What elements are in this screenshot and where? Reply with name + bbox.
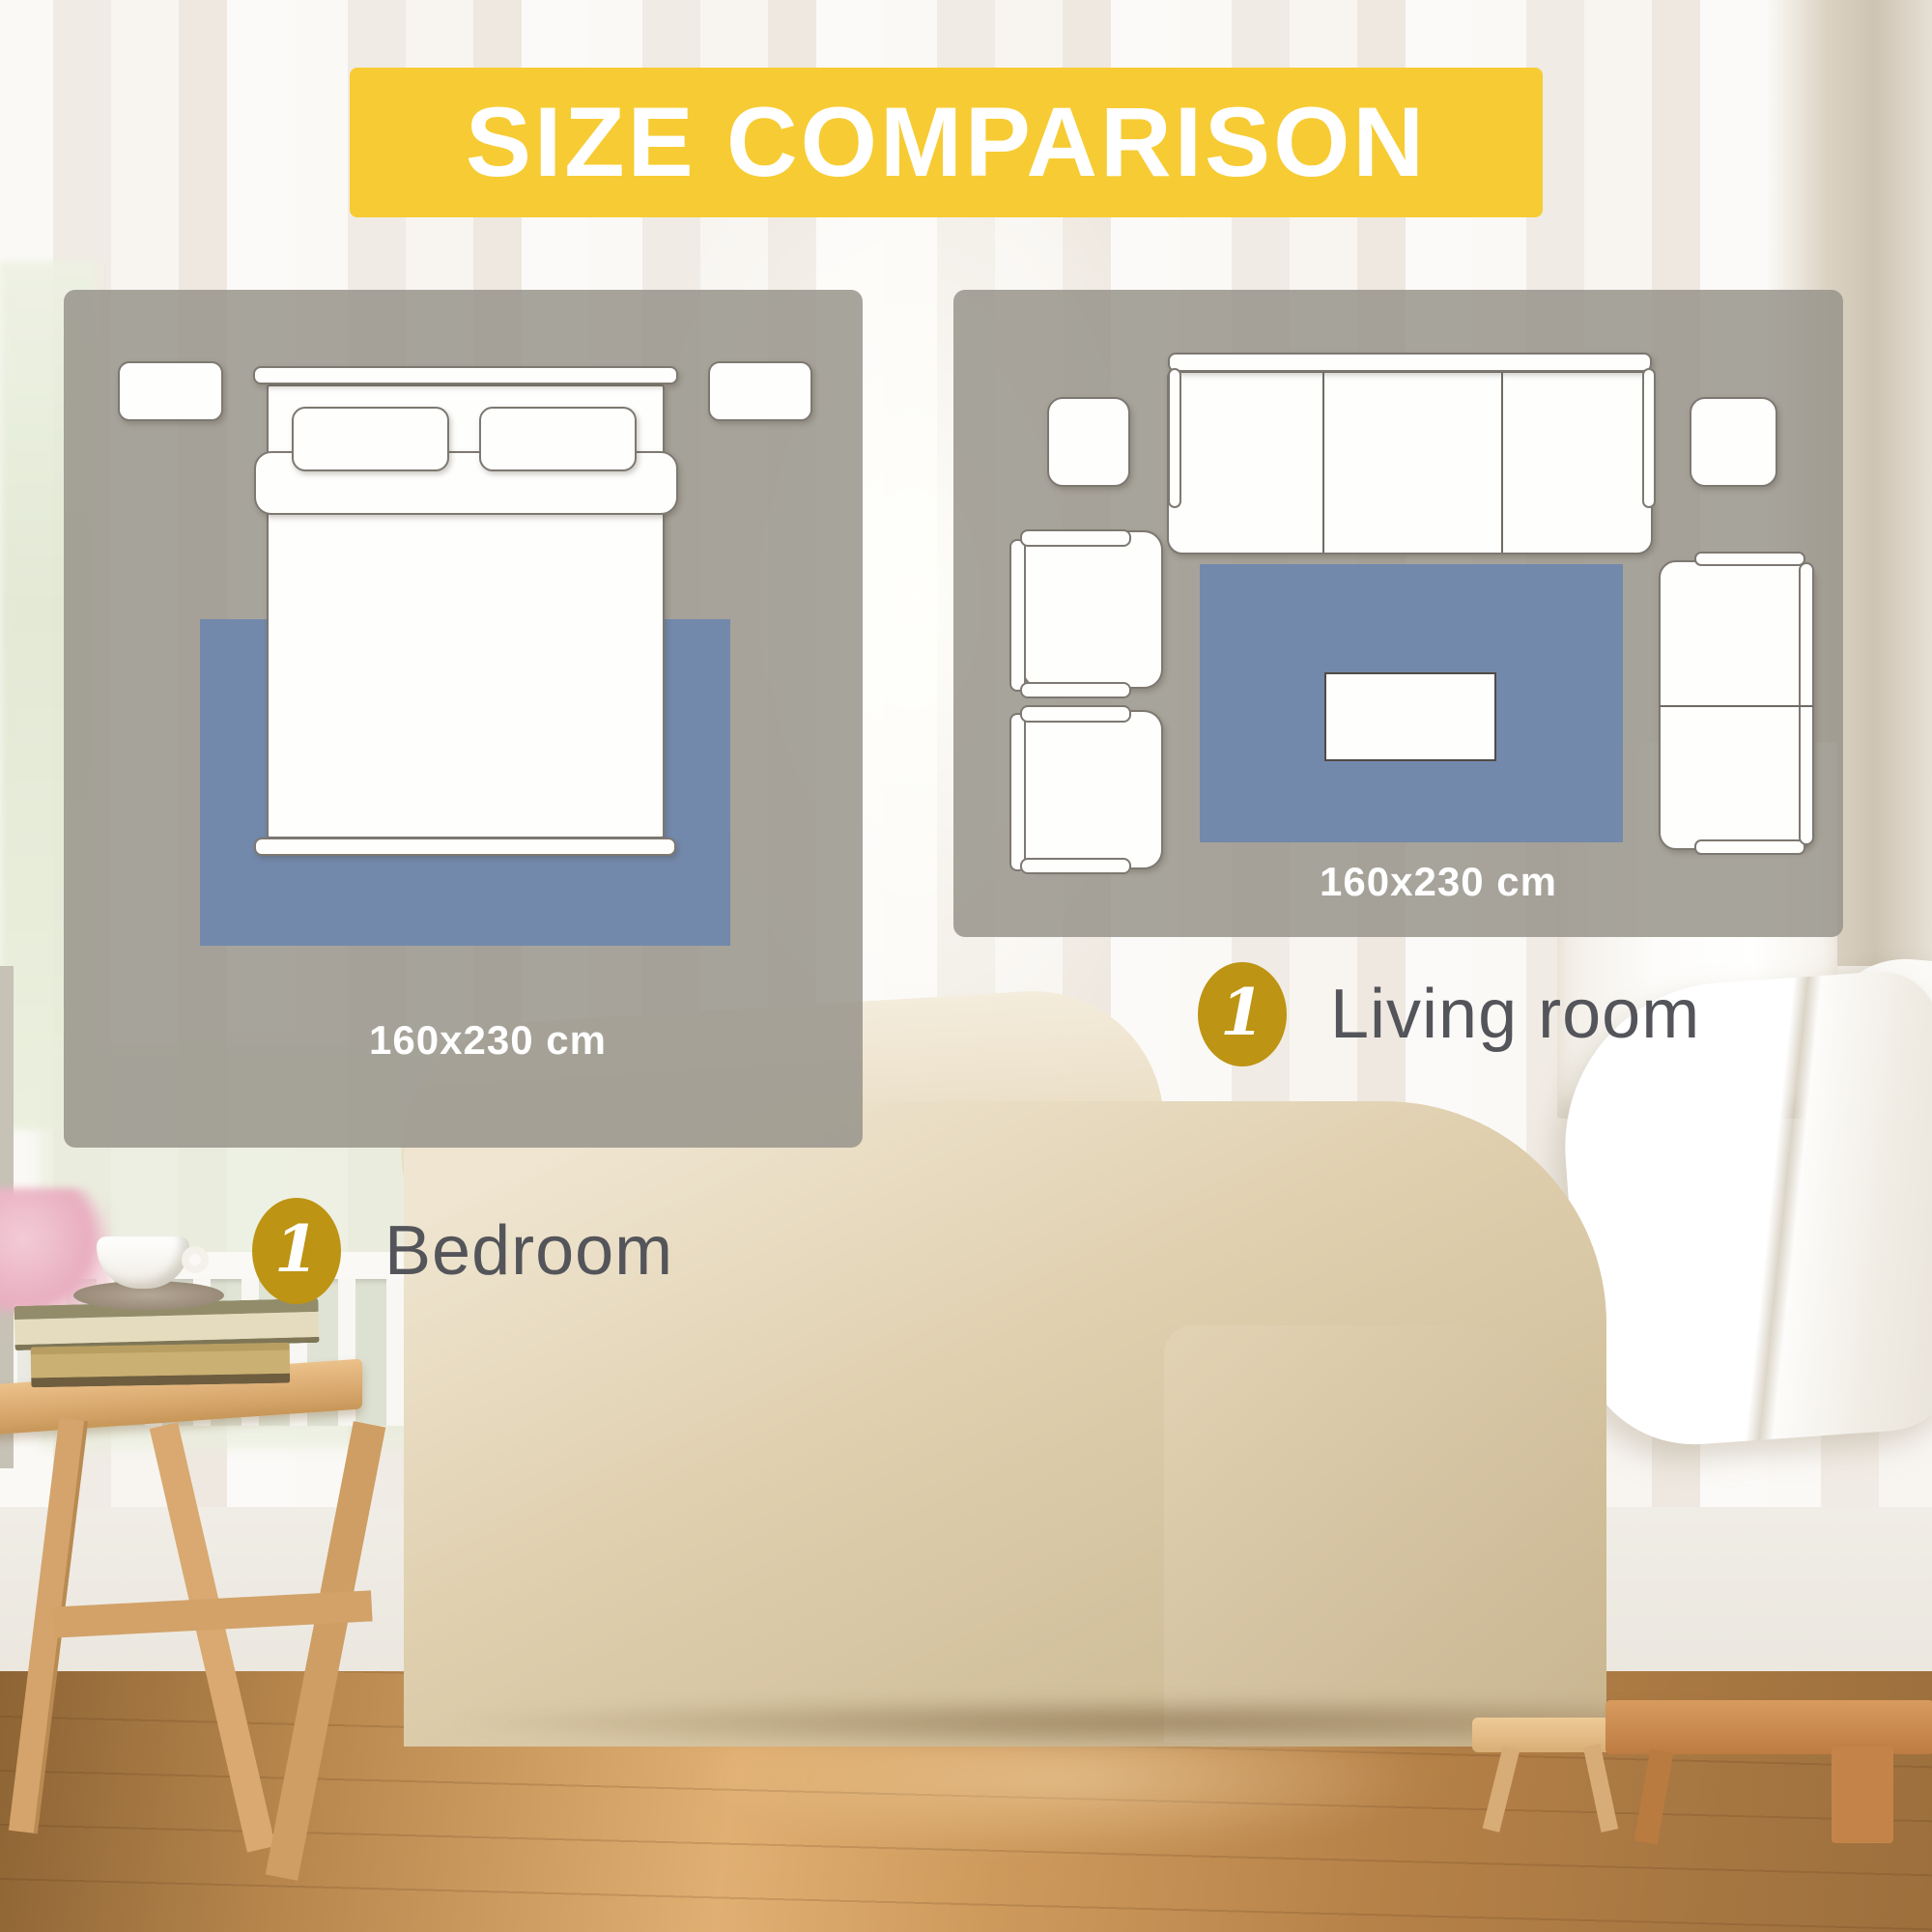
armchair-2-back bbox=[1009, 713, 1026, 871]
infographic-root: SIZE COMPARISON 160x230 cm bbox=[0, 0, 1932, 1932]
bed-plan-pillow-left bbox=[292, 407, 449, 471]
living-room-panel: 160x230 cm bbox=[953, 290, 1843, 937]
nightstand-left bbox=[118, 361, 223, 421]
bed-plan-footboard bbox=[254, 838, 676, 856]
sofa-cushion-divider bbox=[1322, 373, 1324, 553]
caption-label: Bedroom bbox=[384, 1211, 673, 1291]
stool-leg bbox=[1832, 1747, 1893, 1843]
armchair-1-body bbox=[1022, 530, 1163, 689]
armchair-1-back bbox=[1009, 539, 1026, 692]
bed-plan-headboard bbox=[253, 366, 678, 384]
bed-plan-pillow-right bbox=[479, 407, 637, 471]
living-room-rug-size: 160x230 cm bbox=[1245, 859, 1632, 905]
loveseat-back bbox=[1799, 562, 1814, 845]
wood-stool-rear bbox=[1472, 1718, 1625, 1752]
title-banner: SIZE COMPARISON bbox=[350, 68, 1543, 217]
bed-blanket-side bbox=[1164, 1325, 1594, 1743]
bedroom-panel: 160x230 cm bbox=[64, 290, 863, 1148]
side-table-left bbox=[1047, 397, 1130, 487]
teacup-handle bbox=[182, 1246, 209, 1273]
armchair-1-arm bbox=[1020, 682, 1131, 698]
armchair-1-arm bbox=[1020, 529, 1131, 547]
bedroom-caption: 1 Bedroom bbox=[252, 1198, 673, 1304]
loveseat-cushion-divider bbox=[1660, 705, 1813, 707]
badge-number: 1 bbox=[1220, 975, 1264, 1050]
loveseat-arm bbox=[1694, 839, 1805, 855]
sofa-plan-body bbox=[1167, 371, 1653, 554]
loveseat-arm bbox=[1694, 552, 1805, 566]
bedroom-rug-size: 160x230 cm bbox=[295, 1017, 681, 1064]
book-stack-bottom bbox=[31, 1343, 291, 1388]
side-table-right bbox=[1690, 397, 1777, 487]
armchair-2-arm bbox=[1020, 705, 1131, 723]
caption-label: Living room bbox=[1330, 975, 1700, 1054]
number-badge: 1 bbox=[1198, 962, 1287, 1066]
sofa-cushion-divider bbox=[1501, 373, 1503, 553]
number-badge: 1 bbox=[252, 1198, 341, 1304]
sofa-plan-back bbox=[1168, 353, 1652, 372]
armchair-2-arm bbox=[1020, 858, 1131, 874]
sofa-plan-arm-left bbox=[1168, 368, 1181, 508]
sofa-plan-arm-right bbox=[1642, 368, 1656, 508]
armchair-2-body bbox=[1022, 710, 1163, 869]
page-title: SIZE COMPARISON bbox=[466, 86, 1427, 199]
nightstand-right bbox=[708, 361, 812, 421]
badge-number: 1 bbox=[274, 1211, 319, 1287]
living-room-caption: 1 Living room bbox=[1198, 962, 1700, 1066]
coffee-table bbox=[1324, 672, 1496, 761]
